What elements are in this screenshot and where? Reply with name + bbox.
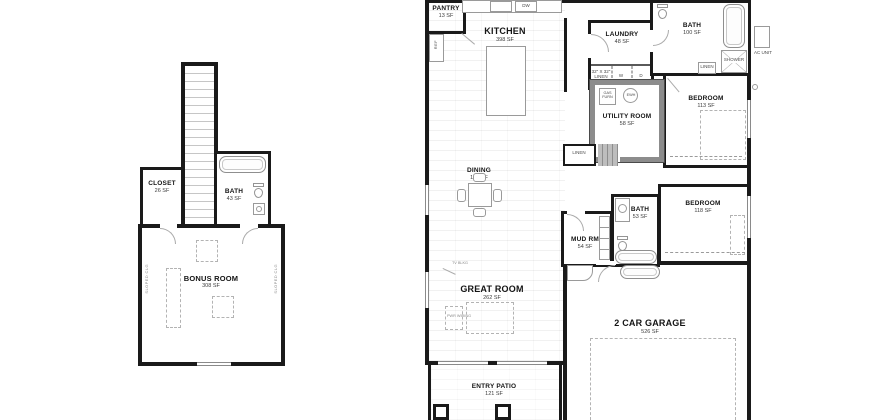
bathtub-icon (723, 4, 745, 48)
ac-unit-label: AC UNIT (754, 51, 772, 56)
kitchen-island-icon (486, 46, 526, 116)
chair-icon (473, 208, 486, 217)
sloped-ceiling-note: SLOPED CLG (273, 264, 278, 294)
wall (591, 64, 651, 66)
bonus-room-label: BONUS ROOM 308 SF (184, 274, 239, 290)
front-bedroom-label: BEDROOM 118 SF (685, 200, 720, 214)
closet-label: CLOSET 26 SF (148, 180, 176, 194)
closet-rod (665, 252, 745, 253)
wall (564, 18, 567, 92)
sofa-icon (166, 268, 181, 328)
front-bath-name: BATH (631, 206, 649, 214)
sloped-ceiling-note: SLOPED CLG (144, 264, 149, 294)
disconnect-icon (752, 84, 758, 90)
laundry-sf: 48 SF (606, 39, 639, 46)
tv-blocking-note: TV BLKG (452, 261, 468, 265)
window-icon (497, 361, 547, 365)
window-icon (197, 362, 231, 366)
wall (559, 364, 562, 420)
upper-bath-sf: 43 SF (225, 196, 243, 203)
great-room-label: GREAT ROOM 262 SF (460, 284, 523, 301)
bonus-room-sf: 308 SF (184, 283, 239, 290)
patio-column (433, 404, 449, 420)
ac-unit-icon (754, 26, 770, 48)
mud-room-name: MUD RM (571, 236, 599, 244)
entry-patio-name: ENTRY PATIO (472, 383, 517, 391)
rear-bedroom-sf: 113 SF (688, 103, 723, 110)
toilet-icon (253, 183, 264, 187)
bathtub-icon (219, 156, 266, 173)
upper-bath-name: BATH (225, 188, 243, 196)
stairs-icon (598, 144, 618, 166)
rear-bedroom-name: BEDROOM (688, 95, 723, 103)
window-icon (425, 185, 429, 215)
hall-bath-name: BATH (683, 22, 701, 30)
front-bedroom-sf: 118 SF (685, 208, 720, 215)
mud-room-sf: 54 SF (571, 244, 599, 251)
door-leaf-icon (667, 78, 679, 92)
great-room-sf: 262 SF (460, 295, 523, 302)
kitchen-name: KITCHEN (484, 26, 525, 37)
closet-sf: 26 SF (148, 188, 176, 195)
bonus-room-name: BONUS ROOM (184, 274, 239, 283)
closet-rod (670, 156, 742, 157)
bed-icon (700, 110, 746, 160)
chair-icon (457, 189, 466, 202)
linen-size-label: 32" X 32" LINEN (591, 70, 611, 79)
dryer-label: D (639, 74, 642, 79)
door-arc-icon (598, 265, 615, 282)
laundry-label: LAUNDRY 48 SF (606, 31, 639, 45)
dresser-icon (730, 215, 745, 255)
stairwell (181, 62, 218, 228)
rear-bedroom-label: BEDROOM 113 SF (688, 95, 723, 109)
floor-plan-canvas: CLOSET 26 SF BATH 43 SF BONUS ROOM 308 S… (0, 0, 870, 420)
parking-outline (590, 338, 736, 420)
entry-patio-sf: 121 SF (472, 391, 517, 398)
mud-room-label: MUD RM 54 SF (571, 236, 599, 250)
washer-label: W (619, 74, 623, 79)
bathtub-icon (615, 250, 657, 264)
pantry-name: PANTRY (432, 5, 459, 13)
hall-bath-sf: 100 SF (683, 30, 701, 37)
front-bedroom-name: BEDROOM (685, 200, 720, 208)
great-room-name: GREAT ROOM (460, 284, 523, 295)
window-icon (747, 196, 751, 238)
sofa-icon (466, 302, 514, 334)
toilet-icon (617, 236, 628, 240)
wall (563, 261, 567, 420)
dishwasher-label: DW (522, 4, 530, 9)
front-bath-sf: 53 SF (631, 214, 649, 221)
window-icon (747, 100, 751, 138)
entry-patio-label: ENTRY PATIO 121 SF (472, 383, 517, 397)
water-heater-label: EWH (627, 93, 636, 97)
utility-room-sf: 58 SF (603, 121, 652, 128)
garage-sf: 526 SF (614, 329, 685, 336)
refrigerator-label: REF (433, 40, 438, 49)
front-bath-label: BATH 53 SF (631, 206, 649, 220)
window-icon (425, 272, 429, 308)
closet-name: CLOSET (148, 180, 176, 188)
utility-room-label: UTILITY ROOM 58 SF (603, 113, 652, 127)
gas-furnace-label: GAS FURN (600, 91, 615, 99)
upper-bath-label: BATH 43 SF (225, 188, 243, 202)
pantry-sf: 13 SF (432, 13, 459, 20)
kitchen-label: KITCHEN 398 SF (484, 26, 525, 43)
toilet-icon (657, 4, 668, 8)
shower-label: SHOWER (724, 58, 744, 63)
wall (663, 165, 751, 168)
sink-icon (618, 204, 627, 213)
utility-sink-icon (620, 265, 660, 279)
hall-bath-label: BATH 100 SF (683, 22, 701, 36)
sink-icon (256, 206, 262, 212)
window-icon (438, 361, 488, 365)
dining-table-icon (468, 183, 492, 207)
counter-icon (462, 0, 562, 13)
garage-step (567, 265, 593, 281)
utility-room-name: UTILITY ROOM (603, 113, 652, 121)
garage-label: 2 CAR GARAGE 526 SF (614, 318, 685, 335)
chair-icon (493, 189, 502, 202)
table-icon (212, 296, 234, 318)
linen-label: LINEN (572, 151, 585, 156)
laundry-name: LAUNDRY (606, 31, 639, 39)
pantry-label: PANTRY 13 SF (432, 5, 459, 19)
kitchen-sf: 398 SF (484, 37, 525, 44)
garage-name: 2 CAR GARAGE (614, 318, 685, 329)
closet-room (140, 167, 184, 228)
chair-icon (473, 173, 486, 182)
wall (428, 364, 431, 420)
patio-column (495, 404, 511, 420)
range-icon (490, 1, 512, 12)
table-icon (196, 240, 218, 262)
wall (658, 184, 751, 187)
power-wiring-note: PWR WIRING (447, 314, 471, 318)
lockers-icon (599, 216, 610, 260)
linen-label: LINEN (700, 65, 713, 70)
